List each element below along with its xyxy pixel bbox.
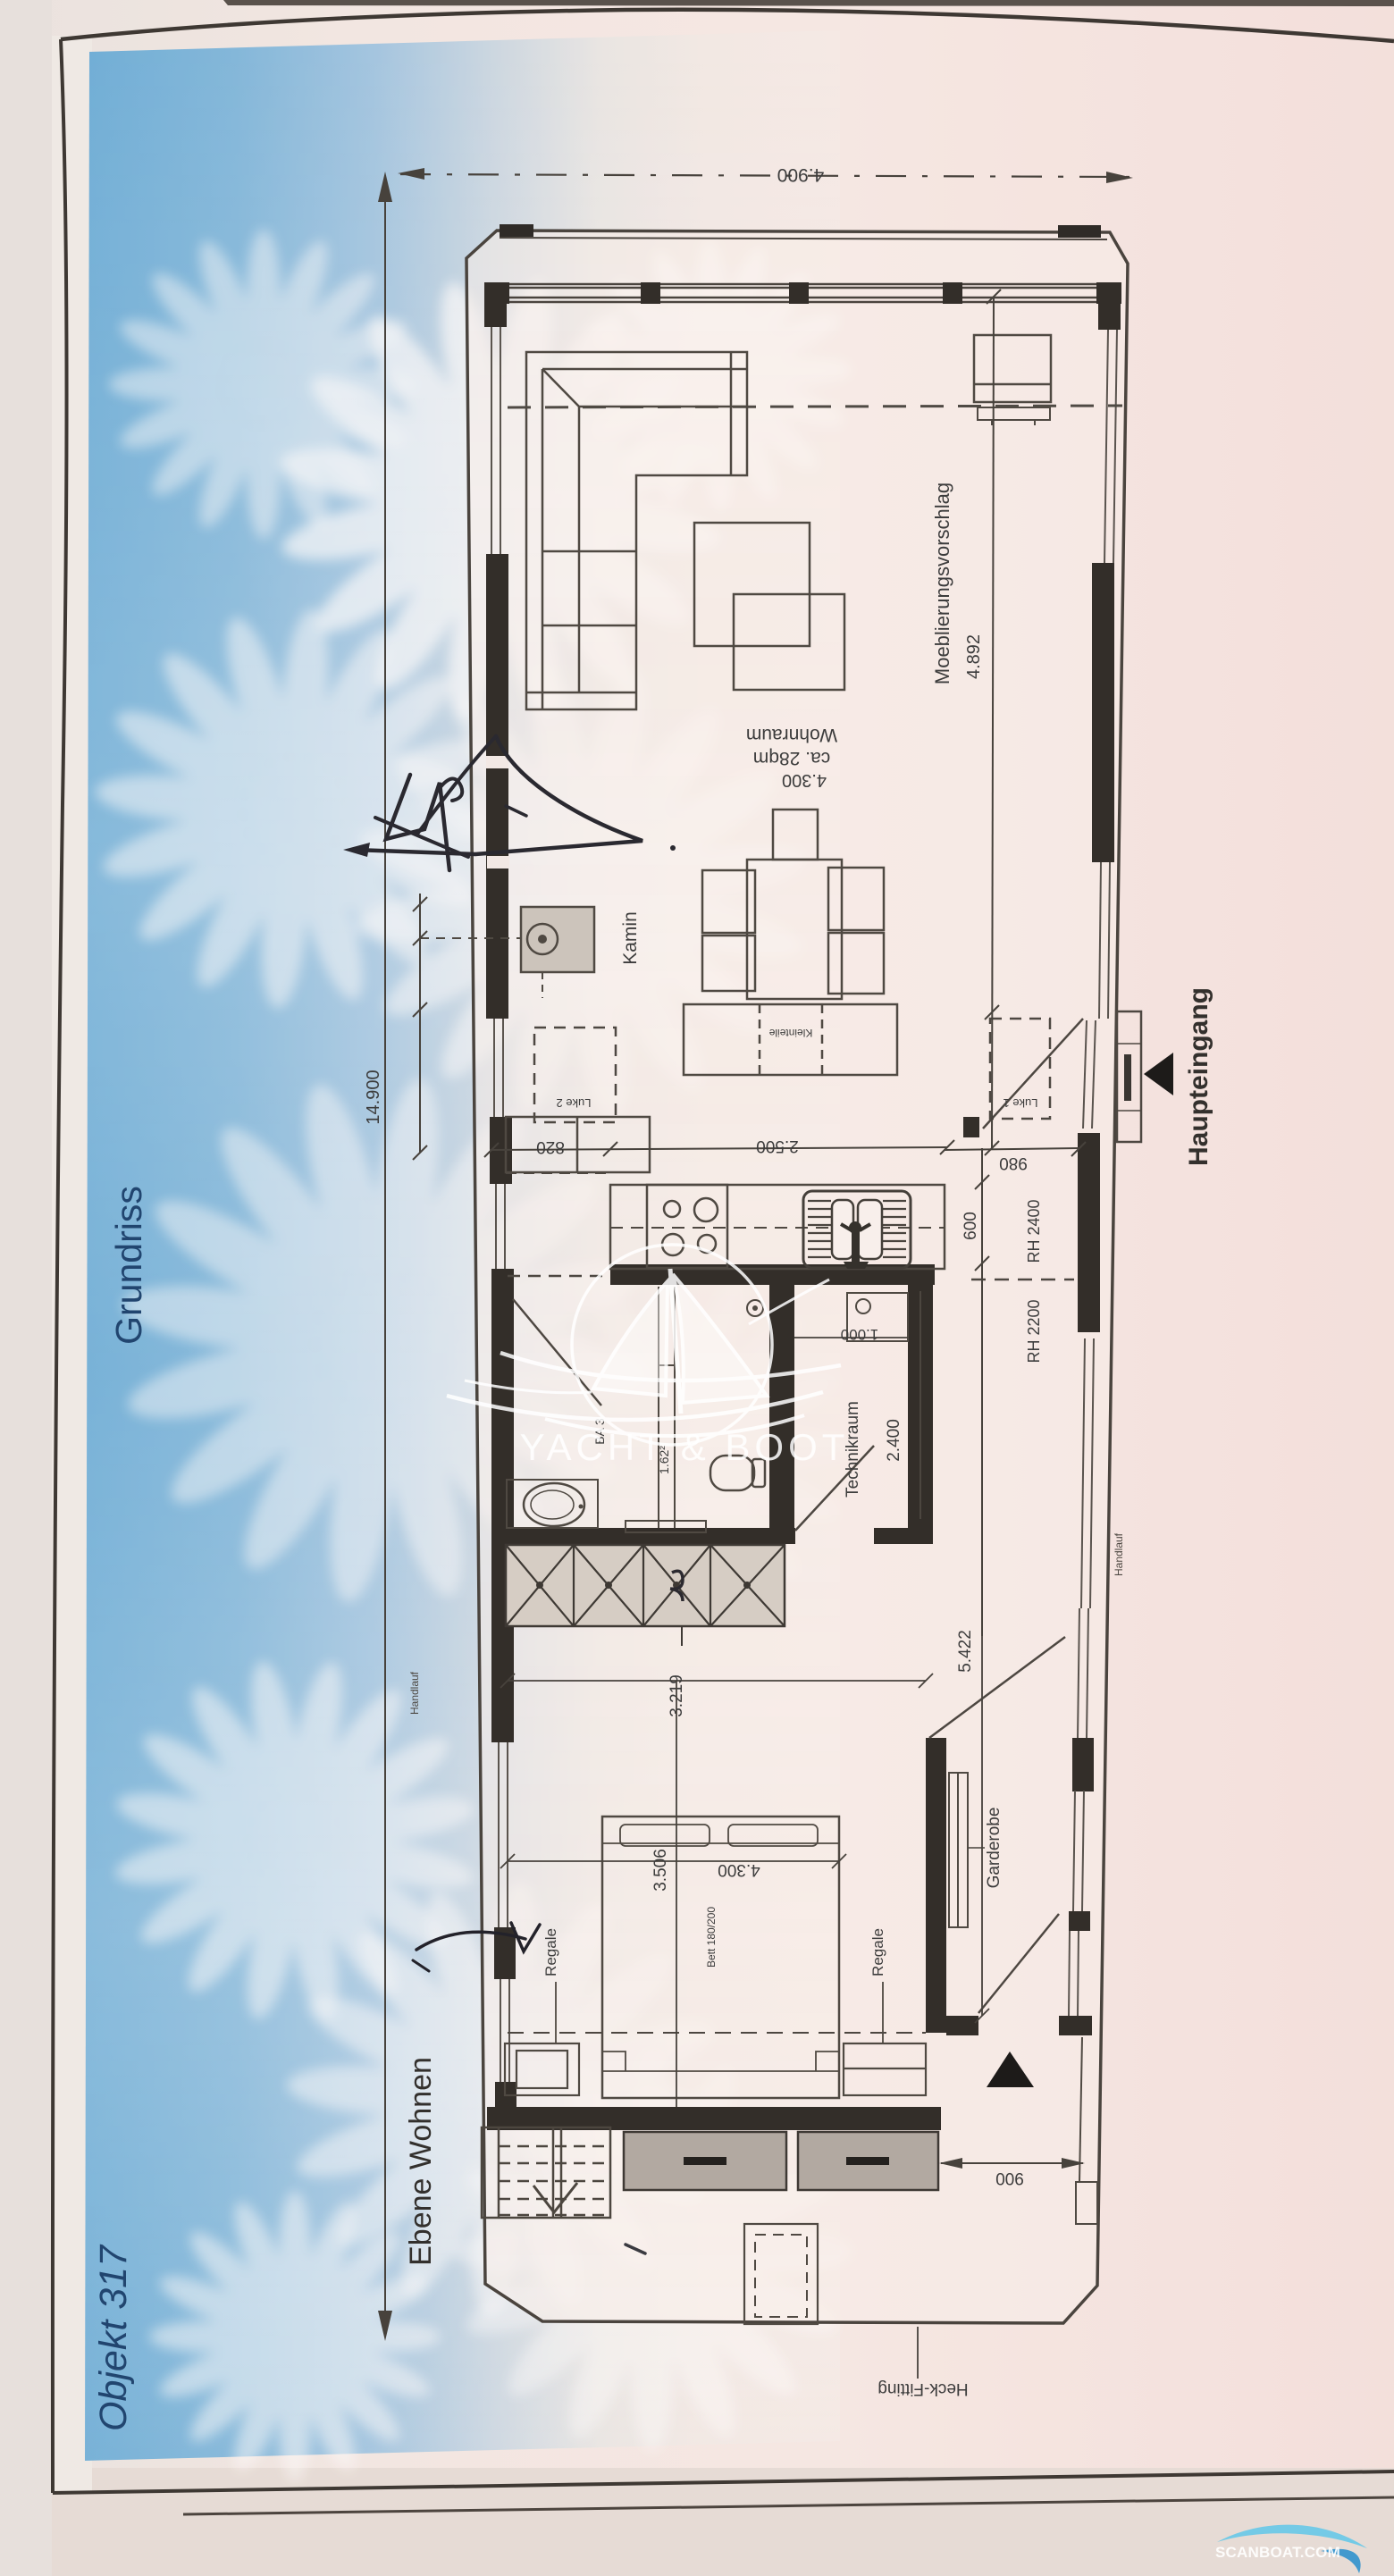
svg-text:RH 2200: RH 2200	[1025, 1299, 1043, 1363]
svg-text:2.500: 2.500	[756, 1137, 799, 1155]
svg-text:Kamin: Kamin	[620, 911, 641, 965]
svg-text:600: 600	[962, 1212, 980, 1240]
svg-text:2.400: 2.400	[885, 1419, 903, 1462]
svg-text:Grundriss: Grundriss	[108, 1186, 149, 1345]
svg-text:14.900: 14.900	[364, 1070, 383, 1124]
svg-text:4.300: 4.300	[782, 770, 827, 790]
svg-text:Bett 180/200: Bett 180/200	[705, 1907, 718, 1968]
svg-text:Haupteingang: Haupteingang	[1184, 987, 1213, 1166]
svg-text:Heck-Fitting: Heck-Fitting	[878, 2379, 968, 2398]
svg-text:Regale: Regale	[869, 1928, 886, 1976]
svg-text:Luke 1: Luke 1	[1003, 1096, 1037, 1110]
svg-text:Kleinteile: Kleinteile	[768, 1027, 812, 1039]
svg-text:900: 900	[995, 2169, 1024, 2187]
svg-text:Moeblierungsvorschlag: Moeblierungsvorschlag	[931, 482, 953, 684]
svg-text:980: 980	[999, 1154, 1028, 1172]
svg-text:SCANBOAT.COM: SCANBOAT.COM	[1215, 2544, 1340, 2561]
svg-text:Luke 2: Luke 2	[556, 1096, 591, 1110]
svg-text:5.422: 5.422	[956, 1630, 975, 1673]
svg-text:Handlauf: Handlauf	[1113, 1532, 1125, 1576]
svg-text:820: 820	[536, 1137, 565, 1156]
svg-text:1.000: 1.000	[841, 1326, 879, 1343]
svg-text:Wohnraum: Wohnraum	[746, 725, 837, 745]
svg-text:YACHT & BOOT: YACHT & BOOT	[520, 1426, 850, 1468]
svg-text:4.892: 4.892	[964, 634, 984, 679]
svg-text:3.506: 3.506	[651, 1849, 670, 1892]
svg-text:RH 2400: RH 2400	[1025, 1199, 1043, 1263]
svg-text:ca. 28qm: ca. 28qm	[753, 748, 830, 768]
svg-text:Objekt 317: Objekt 317	[92, 2244, 135, 2431]
svg-text:Garderobe: Garderobe	[985, 1808, 1004, 1889]
svg-text:Ebene Wohnen: Ebene Wohnen	[404, 2057, 438, 2266]
svg-text:Handlauf: Handlauf	[408, 1671, 421, 1715]
svg-text:4.300: 4.300	[718, 1860, 760, 1879]
svg-text:Regale: Regale	[542, 1928, 559, 1976]
svg-text:4.900: 4.900	[777, 164, 825, 185]
